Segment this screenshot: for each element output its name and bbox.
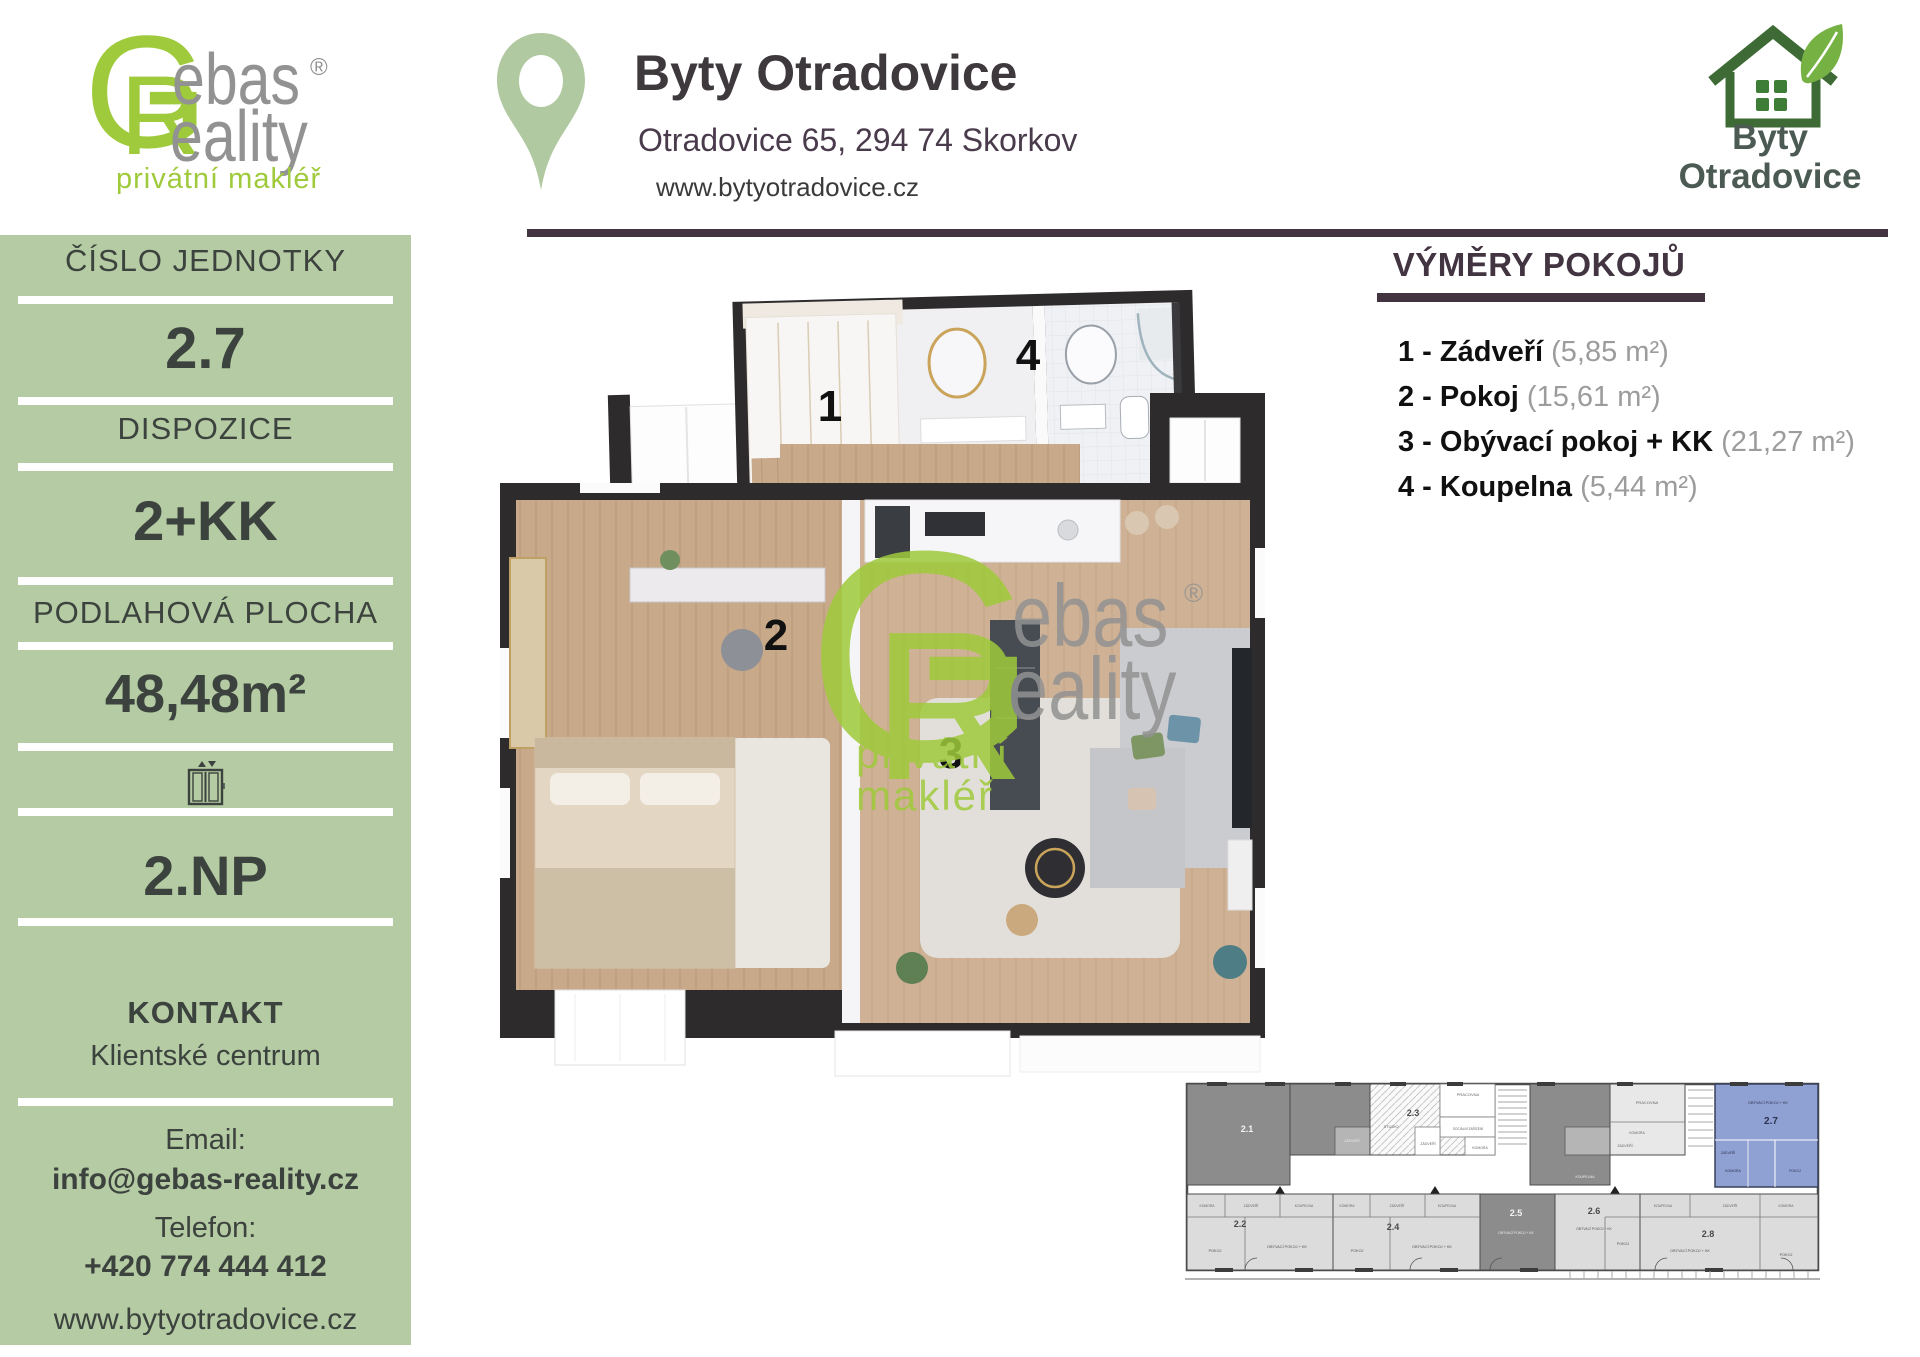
- room-area: (5,44 m²): [1580, 471, 1698, 503]
- miniplan-label: 2.5: [1510, 1208, 1523, 1218]
- divider: [18, 918, 393, 926]
- rooms-panel-title: VÝMĚRY POKOJŮ: [1378, 246, 1700, 284]
- miniplan-label: ZÁDVEŘÍ: [1244, 1203, 1259, 1208]
- miniplan-label: KOUPELNA: [1575, 1175, 1595, 1179]
- miniplan-label: ZÁDVEŘÍ: [1723, 1203, 1738, 1208]
- miniplan-label: ZÁDVEŘÍ: [1390, 1203, 1405, 1208]
- location-pin-icon: [497, 33, 585, 195]
- byty-logo-text: Byty Otradovice: [1650, 118, 1890, 196]
- gebas-logo: G R ebas ® eality privátní makléř: [0, 0, 420, 210]
- email-value[interactable]: info@gebas-reality.cz: [0, 1163, 411, 1197]
- room-name: 3 - Obývací pokoj + KK: [1398, 426, 1713, 458]
- room-name: 4 - Koupelna: [1398, 471, 1572, 503]
- sidebar-website[interactable]: www.bytyotradovice.cz: [0, 1303, 411, 1337]
- miniplan-label: KOMORA: [1725, 1169, 1741, 1173]
- miniplan-label: STUDIO: [1383, 1124, 1398, 1129]
- page-address: Otradovice 65, 294 74 Skorkov: [638, 122, 1077, 159]
- miniplan-label: 2.4: [1387, 1222, 1400, 1232]
- sidebar: ČÍSLO JEDNOTKY 2.7 DISPOZICE 2+KK PODLAH…: [0, 235, 411, 1345]
- divider: [18, 463, 393, 471]
- miniplan-label: OBÝVACÍ POKOJ + KK: [1267, 1245, 1307, 1249]
- miniplan-label: POKOJ: [1209, 1249, 1222, 1253]
- unit-number-value: 2.7: [0, 315, 411, 382]
- layout-value: 2+KK: [0, 488, 411, 553]
- phone-value[interactable]: +420 774 444 412: [0, 1250, 411, 1284]
- miniplan-label: 2.3: [1407, 1108, 1420, 1118]
- floorplan-room-number: 2: [764, 611, 788, 661]
- miniplan-label: KOMORA: [1199, 1204, 1215, 1208]
- miniplan-label: PRACOVNA: [1457, 1092, 1480, 1097]
- miniplan-label: SOCIÁLNÍ ZAŘÍZENÍ: [1453, 1126, 1483, 1131]
- room-area: (15,61 m²): [1527, 381, 1661, 413]
- miniplan-label: OBÝVACÍ POKOJ + KK: [1412, 1245, 1452, 1249]
- floor-value: 2.NP: [0, 843, 411, 908]
- rooms-panel-underline: [1377, 293, 1705, 302]
- miniplan-label: ZÁDVEŘÍ: [1721, 1150, 1735, 1155]
- miniplan-label: POKOJ: [1789, 1169, 1801, 1173]
- miniplan-label: POKOJ: [1617, 1242, 1629, 1246]
- floorplan-room-number: 1: [818, 382, 842, 432]
- miniplan-label: OBÝVACÍ POKOJ + KK: [1670, 1249, 1710, 1253]
- gebas-logo-tagline: privátní makléř: [116, 163, 321, 196]
- byty-logo-line1: Byty: [1650, 118, 1890, 157]
- phone-label: Telefon:: [0, 1212, 411, 1245]
- miniplan-label: ZÁDVEŘÍ: [1617, 1143, 1632, 1148]
- divider: [18, 577, 393, 585]
- divider: [18, 642, 393, 650]
- miniplan-label: KOUPELNA: [1295, 1204, 1314, 1208]
- miniplan-label: KOMORA: [1629, 1131, 1645, 1135]
- room-area: (21,27 m²): [1721, 426, 1855, 458]
- miniplan-label: 2.6: [1588, 1206, 1601, 1216]
- miniplan-label: POKOJ: [1351, 1249, 1364, 1253]
- layout-label: DISPOZICE: [0, 411, 411, 447]
- miniplan-label: PRACOVNA: [1636, 1100, 1659, 1105]
- floorplan-room-number: 4: [1016, 331, 1040, 381]
- floorplan-render: [480, 268, 1280, 1078]
- miniplan-label: 2.1: [1241, 1124, 1254, 1134]
- registered-icon: ®: [310, 54, 328, 82]
- byty-logo-line2: Otradovice: [1650, 157, 1890, 196]
- divider: [18, 1098, 393, 1106]
- miniplan-label: 2.7: [1764, 1116, 1778, 1127]
- miniplan-label: 2.8: [1702, 1229, 1715, 1239]
- contact-name: Klientské centrum: [0, 1040, 411, 1073]
- miniplan-label: OBÝVACÍ POKOJ + KK: [1498, 1231, 1534, 1235]
- divider: [18, 296, 393, 304]
- unit-number-label: ČÍSLO JEDNOTKY: [0, 243, 411, 279]
- miniplan-label: KOMORA: [1472, 1146, 1488, 1150]
- byty-house-leaf-icon: [1706, 22, 1846, 128]
- room-list-item: 3 - Obývací pokoj + KK (21,27 m²): [1398, 426, 1855, 459]
- miniplan-label: KOMORA: [1339, 1204, 1355, 1208]
- area-value: 48,48m²: [0, 663, 411, 725]
- header-website[interactable]: www.bytyotradovice.cz: [656, 172, 919, 203]
- divider: [18, 743, 393, 751]
- room-list-item: 2 - Pokoj (15,61 m²): [1398, 381, 1661, 414]
- divider: [18, 397, 393, 405]
- area-label: PODLAHOVÁ PLOCHA: [0, 595, 411, 631]
- header-divider: [527, 229, 1888, 237]
- elevator-icon: [184, 759, 228, 807]
- email-label: Email:: [0, 1124, 411, 1157]
- miniplan-label: OBÝVACÍ POKOJ + KK: [1748, 1101, 1788, 1105]
- room-name: 2 - Pokoj: [1398, 381, 1519, 413]
- miniplan-label: KOUPELNA: [1438, 1204, 1457, 1208]
- contact-label: KONTAKT: [0, 995, 411, 1031]
- miniplan-label: POKOJ: [1780, 1253, 1793, 1257]
- room-list-item: 4 - Koupelna (5,44 m²): [1398, 471, 1698, 504]
- miniplan-label: KOMORA: [1778, 1204, 1794, 1208]
- miniplan-label: 2.2: [1234, 1219, 1247, 1229]
- building-floor-overview-plan[interactable]: 2.1ZÁDVEŘÍ2.3STUDIOPRACOVNASOCIÁLNÍ ZAŘÍ…: [1185, 1082, 1820, 1282]
- miniplan-label: ZÁDVEŘÍ: [1344, 1138, 1360, 1143]
- floorplan-room-number: 3: [939, 729, 963, 779]
- room-list-item: 1 - Zádveří (5,85 m²): [1398, 336, 1669, 369]
- page-title: Byty Otradovice: [634, 44, 1017, 102]
- miniplan-label: OBÝVACÍ POKOJ + KK: [1576, 1227, 1612, 1231]
- room-name: 1 - Zádveří: [1398, 336, 1543, 368]
- miniplan-label: KOUPELNA: [1654, 1204, 1673, 1208]
- miniplan-label: ZÁDVEŘÍ: [1420, 1141, 1435, 1146]
- divider: [18, 808, 393, 816]
- room-area: (5,85 m²): [1551, 336, 1669, 368]
